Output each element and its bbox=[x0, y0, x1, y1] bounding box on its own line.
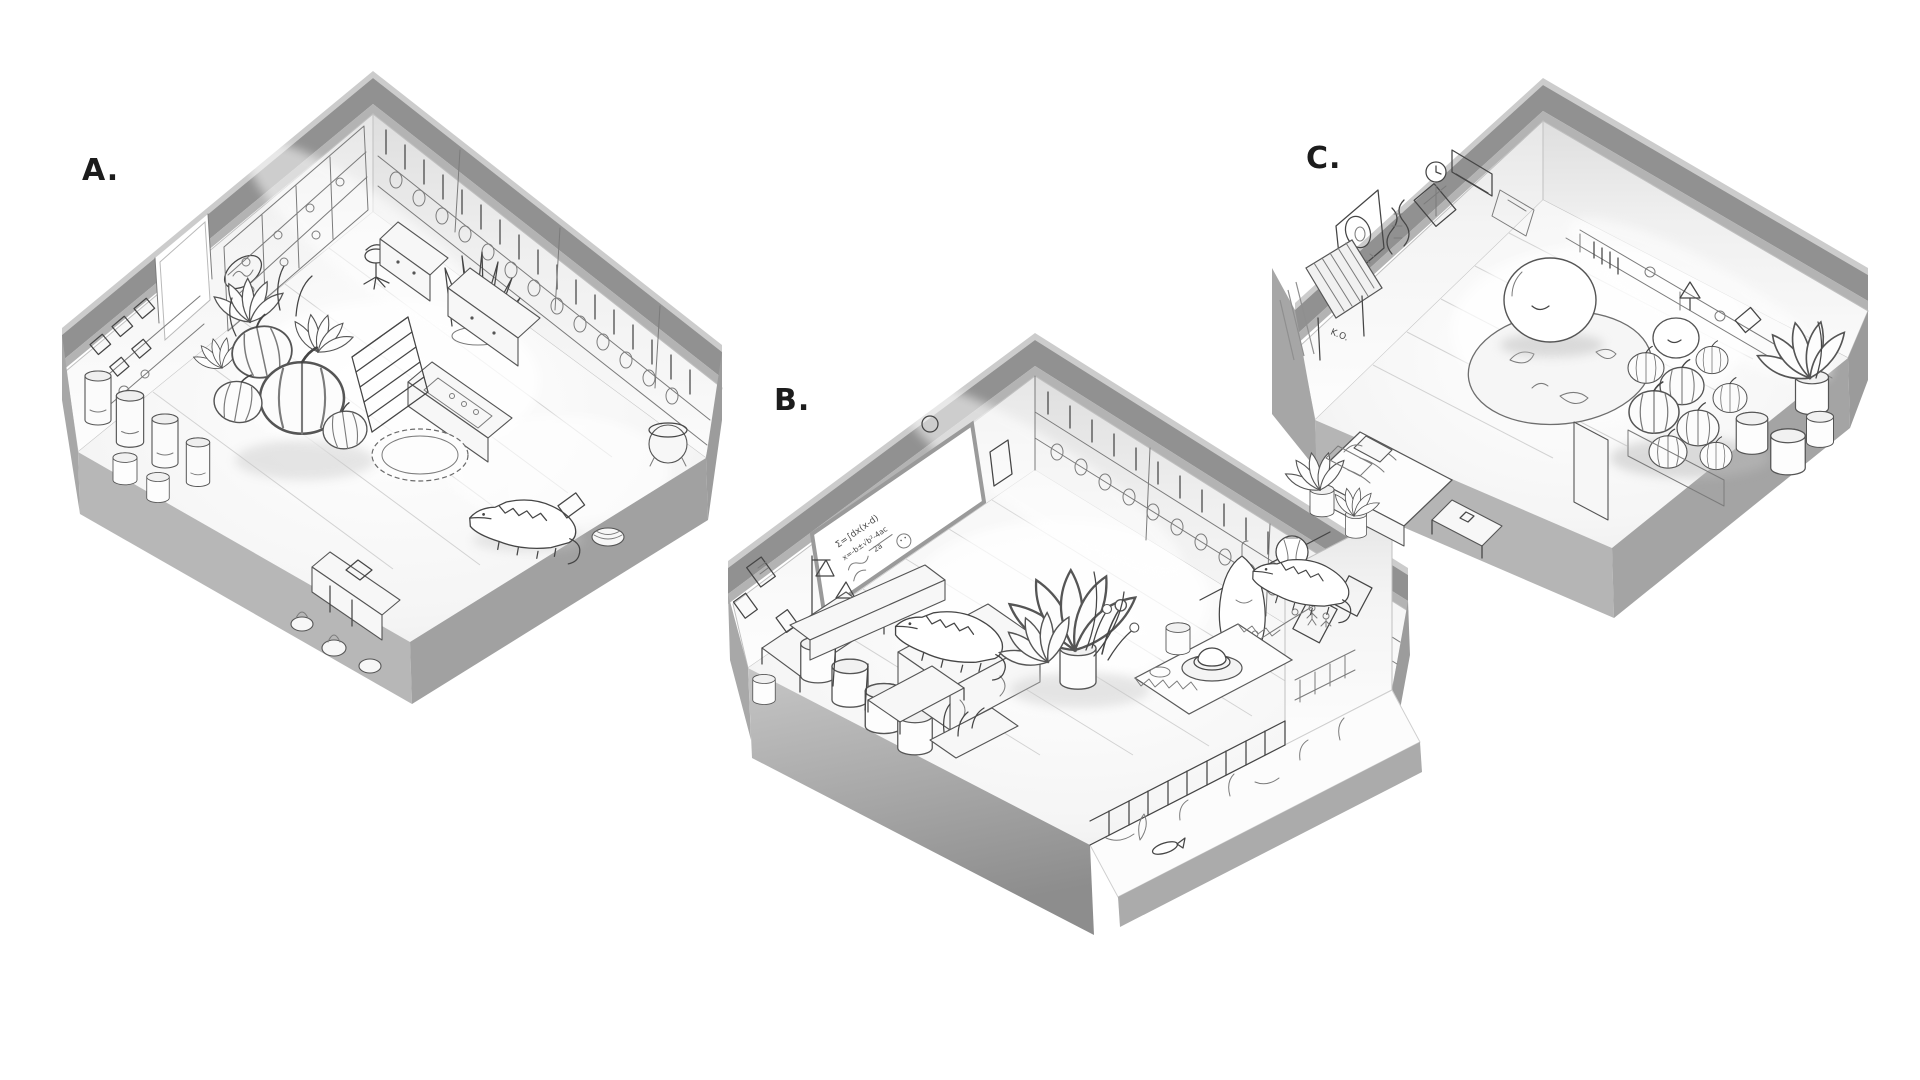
lace-rug bbox=[372, 429, 468, 481]
wall-clock bbox=[1426, 162, 1446, 182]
small-blob bbox=[1653, 318, 1699, 358]
concept-sheet: Σ=∫dx(x-d) x=-b±√b²-4ac 2a bbox=[0, 0, 1920, 1080]
white-column bbox=[1574, 422, 1608, 520]
room-a-illustration bbox=[62, 71, 722, 704]
room-c-label: C. bbox=[1306, 141, 1341, 176]
room-a-label: A. bbox=[82, 153, 119, 188]
room-b-label: B. bbox=[774, 383, 810, 418]
rooms-illustration: Σ=∫dx(x-d) x=-b±√b²-4ac 2a bbox=[0, 0, 1920, 1080]
